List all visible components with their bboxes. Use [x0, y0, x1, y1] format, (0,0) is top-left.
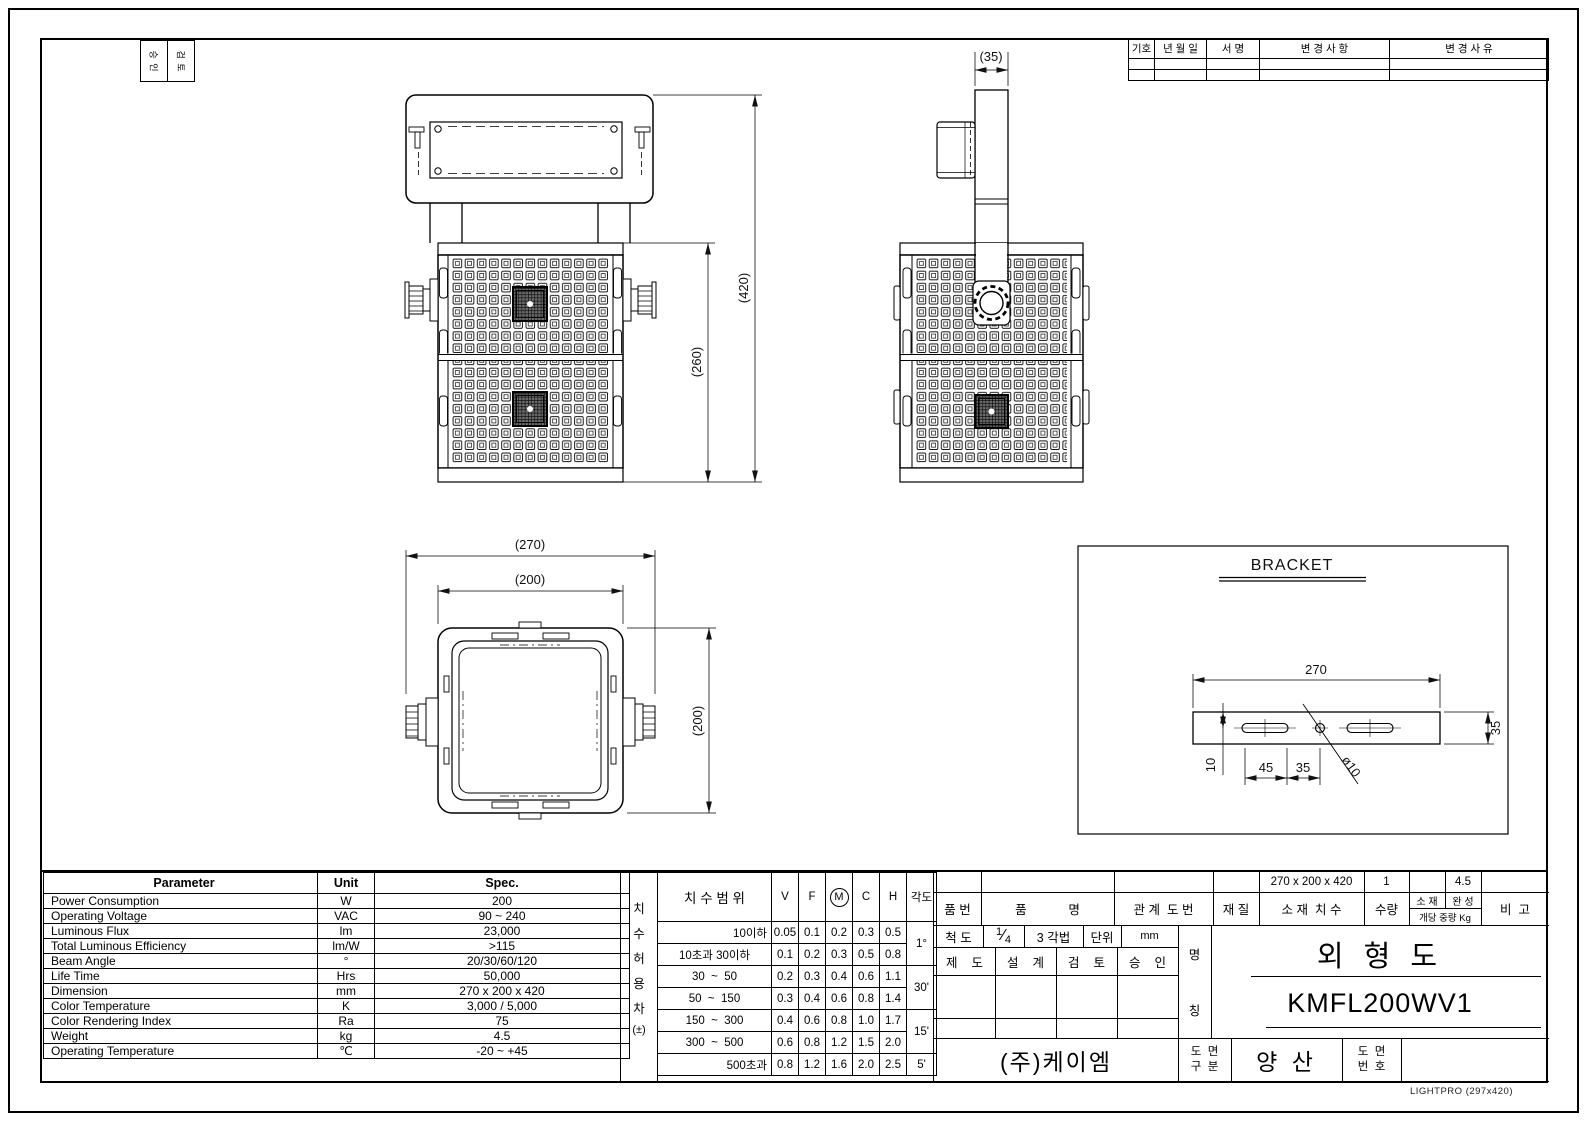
finished-weight-value: 4.5: [1445, 872, 1482, 893]
related-dwg-header: 관 계 도 번: [1114, 892, 1214, 926]
table-row: 300 ~ 500 0.60.81.21.52.0: [658, 1032, 937, 1054]
signature-box: [1056, 975, 1118, 1019]
date-box: [934, 1018, 996, 1039]
col-range: 치 수 범 위: [658, 873, 772, 922]
qty-header: 수량: [1364, 892, 1410, 926]
title-underline: [1251, 976, 1541, 977]
tolerance-side-label: 치 수 허 용 차 (±): [620, 872, 658, 1083]
stock-wt-header: 소 재: [1409, 892, 1446, 909]
col-parameter: Parameter: [44, 873, 318, 894]
dim-body-width: (200): [515, 572, 545, 587]
table-row: Weightkg4.5: [44, 1029, 630, 1044]
table-row: 150 ~ 300 0.40.60.81.01.7 15': [658, 1010, 937, 1032]
dim-bracket-width: (35): [979, 49, 1002, 64]
table-row: Power ConsumptionW200: [44, 894, 630, 909]
top-right-knob: [623, 698, 655, 746]
dim-bracket-length: 270: [1305, 662, 1327, 677]
angle-value: 15': [907, 1010, 937, 1054]
table-row: 10초과 30이하 0.10.20.30.50.8: [658, 944, 937, 966]
col-unit: Unit: [318, 873, 375, 894]
table-row: 500초과 0.81.21.62.02.5 5': [658, 1054, 937, 1076]
table-row: Life TimeHrs50,000: [44, 969, 630, 984]
stock-size-value: 270 x 200 x 420: [1259, 872, 1365, 893]
angle-value: 5': [907, 1054, 937, 1076]
angle-value: 1°: [907, 922, 937, 966]
gland-patch-upper: [513, 287, 547, 321]
left-adjust-knob: [405, 279, 438, 321]
table-row: Beam Angle°20/30/60/120: [44, 954, 630, 969]
circled-m: M: [830, 888, 849, 907]
table-row: Color Rendering IndexRa75: [44, 1014, 630, 1029]
parameter-header-row: Parameter Unit Spec.: [44, 873, 630, 894]
dim-bracket-width: 35: [1488, 721, 1503, 735]
stock-size-header: 소 재 치 수: [1259, 892, 1365, 926]
date-box: [995, 1018, 1057, 1039]
top-view: (270) (200) (200): [406, 537, 716, 819]
col-grade-c: C: [853, 873, 880, 922]
dim-hole-offset: 10: [1203, 758, 1218, 772]
finished-wt-header: 완 성: [1445, 892, 1482, 909]
tolerance-table: 치 수 범 위 V F M C H 각도 10이하 0.050.10.20.30…: [657, 872, 937, 1076]
side-view: (35): [894, 49, 1089, 482]
front-view: (420) (260): [405, 95, 762, 482]
name-column: 명 칭: [1178, 925, 1212, 1039]
projection-method: 3 각법: [1024, 925, 1084, 948]
gland-patch-side: [975, 395, 1008, 428]
parameter-table: Parameter Unit Spec. Power ConsumptionW2…: [43, 872, 630, 1059]
col-grade-f: F: [799, 873, 826, 922]
company-name: (주)케이엠: [934, 1038, 1179, 1082]
drawing-class-value: 양 산: [1231, 1038, 1343, 1082]
dim-slot-to-center: 35: [1296, 760, 1310, 775]
dim-overall-width: (270): [515, 537, 545, 552]
material-header: 재 질: [1213, 892, 1260, 926]
drafted-label: 제 도: [934, 947, 996, 976]
right-adjust-knob: [623, 279, 656, 321]
pivot-knob: [973, 281, 1010, 325]
col-angle: 각도: [907, 873, 937, 922]
table-row: 50 ~ 150 0.30.40.60.81.4: [658, 988, 937, 1010]
gland-patch-lower: [513, 392, 547, 426]
table-row: Dimensionmm270 x 200 x 420: [44, 984, 630, 999]
tolerance-header-row: 치 수 범 위 V F M C H 각도: [658, 873, 937, 922]
drawing-title-area: 외 형 도 KMFL200WV1: [1211, 925, 1549, 1039]
model-number: KMFL200WV1: [1287, 988, 1473, 1019]
stock-weight-value: [1409, 872, 1446, 893]
col-spec: Spec.: [375, 873, 630, 894]
angle-value: 30': [907, 966, 937, 1010]
part-name-header: 품 명: [981, 892, 1115, 926]
remark-value: [1481, 872, 1549, 893]
signature-box: [995, 975, 1057, 1019]
unit-label: 단위: [1083, 925, 1122, 948]
checked-label: 검 토: [1056, 947, 1118, 976]
views-canvas: (420) (260) (35): [0, 0, 1588, 860]
template-stamp: LIGHTPRO (297x420): [1410, 1086, 1513, 1097]
drawing-class-label: 도 면구 분: [1178, 1038, 1232, 1082]
table-row: Operating Temperature℃-20 ~ +45: [44, 1044, 630, 1059]
drawing-no-label: 도 면번 호: [1342, 1038, 1402, 1082]
drawing-no-value: [1401, 1038, 1549, 1082]
approved-label: 승 인: [1117, 947, 1179, 976]
model-underline: [1266, 1027, 1541, 1028]
mount-plate-edge: [937, 122, 975, 178]
table-row: Total Luminous Efficiencylm/W>115: [44, 939, 630, 954]
table-row: Operating VoltageVAC90 ~ 240: [44, 909, 630, 924]
col-grade-v: V: [772, 873, 799, 922]
table-row: Color TemperatureK3,000 / 5,000: [44, 999, 630, 1014]
top-left-knob: [406, 698, 438, 746]
dim-slot-length: 45: [1259, 760, 1273, 775]
col-grade-h: H: [880, 873, 907, 922]
qty-value: 1: [1364, 872, 1410, 893]
remark-header: 비 고: [1481, 892, 1549, 926]
tolerance-pm: (±): [632, 1024, 645, 1036]
bracket-detail: BRACKET ø10: [1078, 546, 1508, 834]
table-row: Luminous Fluxlm23,000: [44, 924, 630, 939]
dim-body-height: (260): [689, 347, 704, 377]
scale-label: 척 도: [934, 925, 984, 948]
bracket-title: BRACKET: [1251, 557, 1334, 574]
designed-label: 설 계: [995, 947, 1057, 976]
drawing-title: 외 형 도: [1317, 933, 1443, 975]
table-row: 30 ~ 50 0.20.30.40.61.1 30': [658, 966, 937, 988]
date-box: [1117, 1018, 1179, 1039]
col-grade-m: M: [826, 873, 853, 922]
table-row: 10이하 0.050.10.20.30.5 1°: [658, 922, 937, 944]
per-unit-weight-header: 개당 중량 Kg: [1409, 909, 1482, 926]
scale-value: 1⁄4: [983, 925, 1025, 948]
unit-value: mm: [1121, 925, 1179, 948]
signature-box: [934, 975, 996, 1019]
tolerance-label-text: 치 수 허 용 차: [630, 897, 648, 1022]
date-box: [1056, 1018, 1118, 1039]
signature-box: [1117, 975, 1179, 1019]
part-no-header: 품 번: [934, 892, 982, 926]
title-block: 270 x 200 x 420 1 4.5 품 번 품 명 관 계 도 번 재 …: [933, 872, 1549, 1081]
dim-body-depth: (200): [690, 706, 705, 736]
drawing-sheet: 승 인 검 토 기호 년 월 일 서 명 변 경 사 항 변 경 사 유: [0, 0, 1588, 1122]
dim-overall-height: (420): [736, 273, 751, 303]
